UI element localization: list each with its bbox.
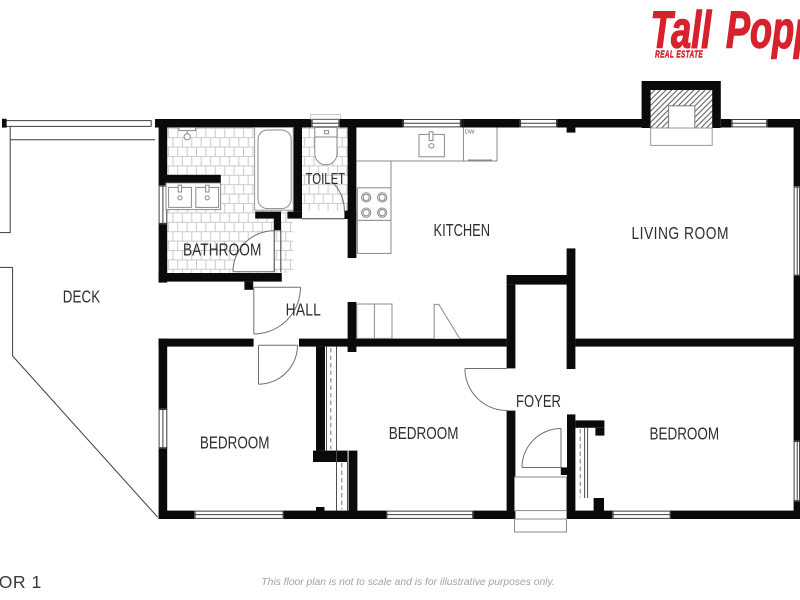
svg-text:REAL ESTATE: REAL ESTATE (655, 48, 703, 60)
svg-text:DW: DW (465, 130, 475, 136)
svg-text:BEDROOM: BEDROOM (389, 425, 459, 444)
svg-text:BEDROOM: BEDROOM (200, 434, 270, 453)
svg-text:BEDROOM: BEDROOM (649, 425, 719, 444)
svg-text:DECK: DECK (63, 288, 101, 307)
svg-text:TOILET: TOILET (306, 169, 346, 187)
svg-text:This floor plan is not to scal: This floor plan is not to scale and is f… (261, 577, 554, 588)
svg-text:FOYER: FOYER (516, 392, 561, 411)
svg-text:LIVING ROOM: LIVING ROOM (631, 225, 729, 244)
svg-text:FLOOR 1: FLOOR 1 (0, 572, 42, 592)
svg-text:KITCHEN: KITCHEN (434, 221, 491, 240)
svg-text:BATHROOM: BATHROOM (183, 241, 262, 260)
svg-text:HALL: HALL (286, 301, 321, 320)
